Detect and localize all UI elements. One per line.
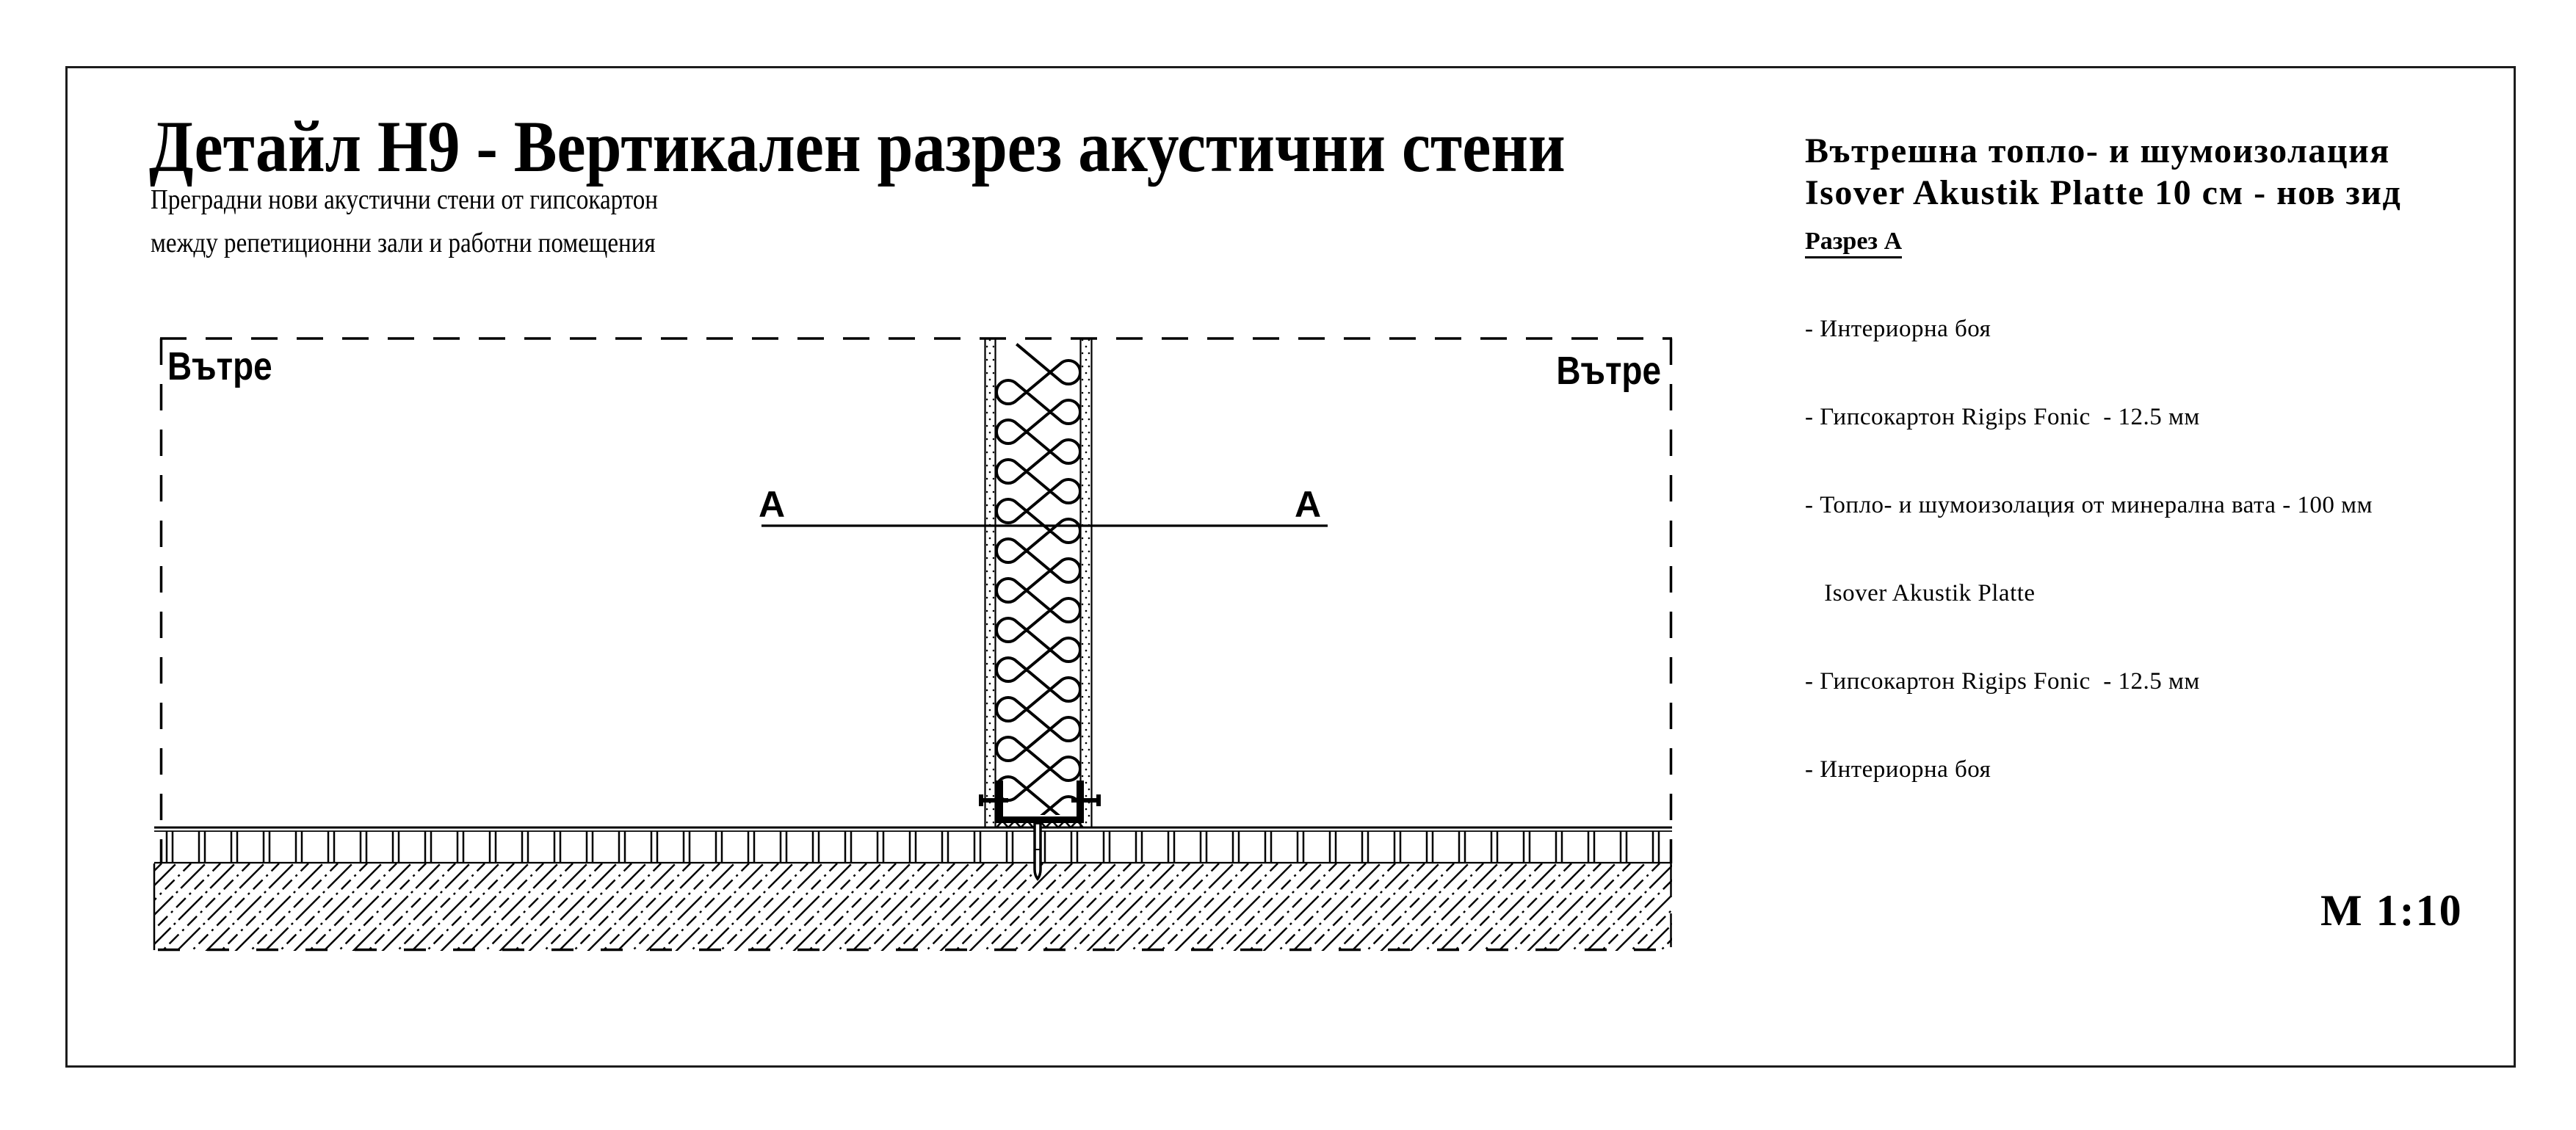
legend-item-list: - Интериорна боя - Гипсокартон Rigips Fo… <box>1805 256 2373 843</box>
concrete-slab-hatch <box>59 863 1748 952</box>
room-label-right: Вътре <box>1474 348 1661 394</box>
legend-heading-line1: Вътрешна топло- и шумоизолация <box>1805 132 2390 171</box>
sheet-subtitle-line2: между репетиционни зали и работни помеще… <box>151 228 656 259</box>
floor-anchor <box>1035 823 1041 879</box>
mineral-wool-insulation <box>996 344 1080 880</box>
plasterboard-right <box>1082 338 1090 827</box>
plasterboard-left <box>986 338 994 827</box>
legend-item: - Гипсокартон Rigips Fonic - 12.5 мм <box>1805 667 2373 696</box>
legend-item: - Топло- и шумоизолация от минерална ват… <box>1805 490 2373 520</box>
acoustic-wall <box>979 338 1101 880</box>
drawing-sheet: Детайл Н9 - Вертикален разрез акустични … <box>0 0 2576 1130</box>
room-label-left: Вътре <box>167 344 272 389</box>
legend-heading-line2: Isover Akustik Platte 10 см - нов зид <box>1805 174 2401 213</box>
floor-track-u-profile <box>996 781 1084 823</box>
legend-item: - Гипсокартон Rigips Fonic - 12.5 мм <box>1805 402 2373 432</box>
room-boundary-dashed <box>160 338 1672 863</box>
sheet-subtitle-line1: Преградни нови акустични стени от гипсок… <box>151 185 658 216</box>
section-marker-a-right: A <box>1295 483 1321 526</box>
section-marker-a-left: A <box>759 483 785 526</box>
floor-finish-band <box>154 827 1672 863</box>
scale-label: М 1:10 <box>2320 885 2463 936</box>
legend-item: Isover Akustik Platte <box>1805 579 2373 608</box>
legend-item: - Интериорна боя <box>1805 755 2373 784</box>
legend-section-heading: Разрез А <box>1805 228 1902 258</box>
sheet-title: Детайл Н9 - Вертикален разрез акустични … <box>149 106 1566 187</box>
legend-item: - Интериорна боя <box>1805 314 2373 344</box>
